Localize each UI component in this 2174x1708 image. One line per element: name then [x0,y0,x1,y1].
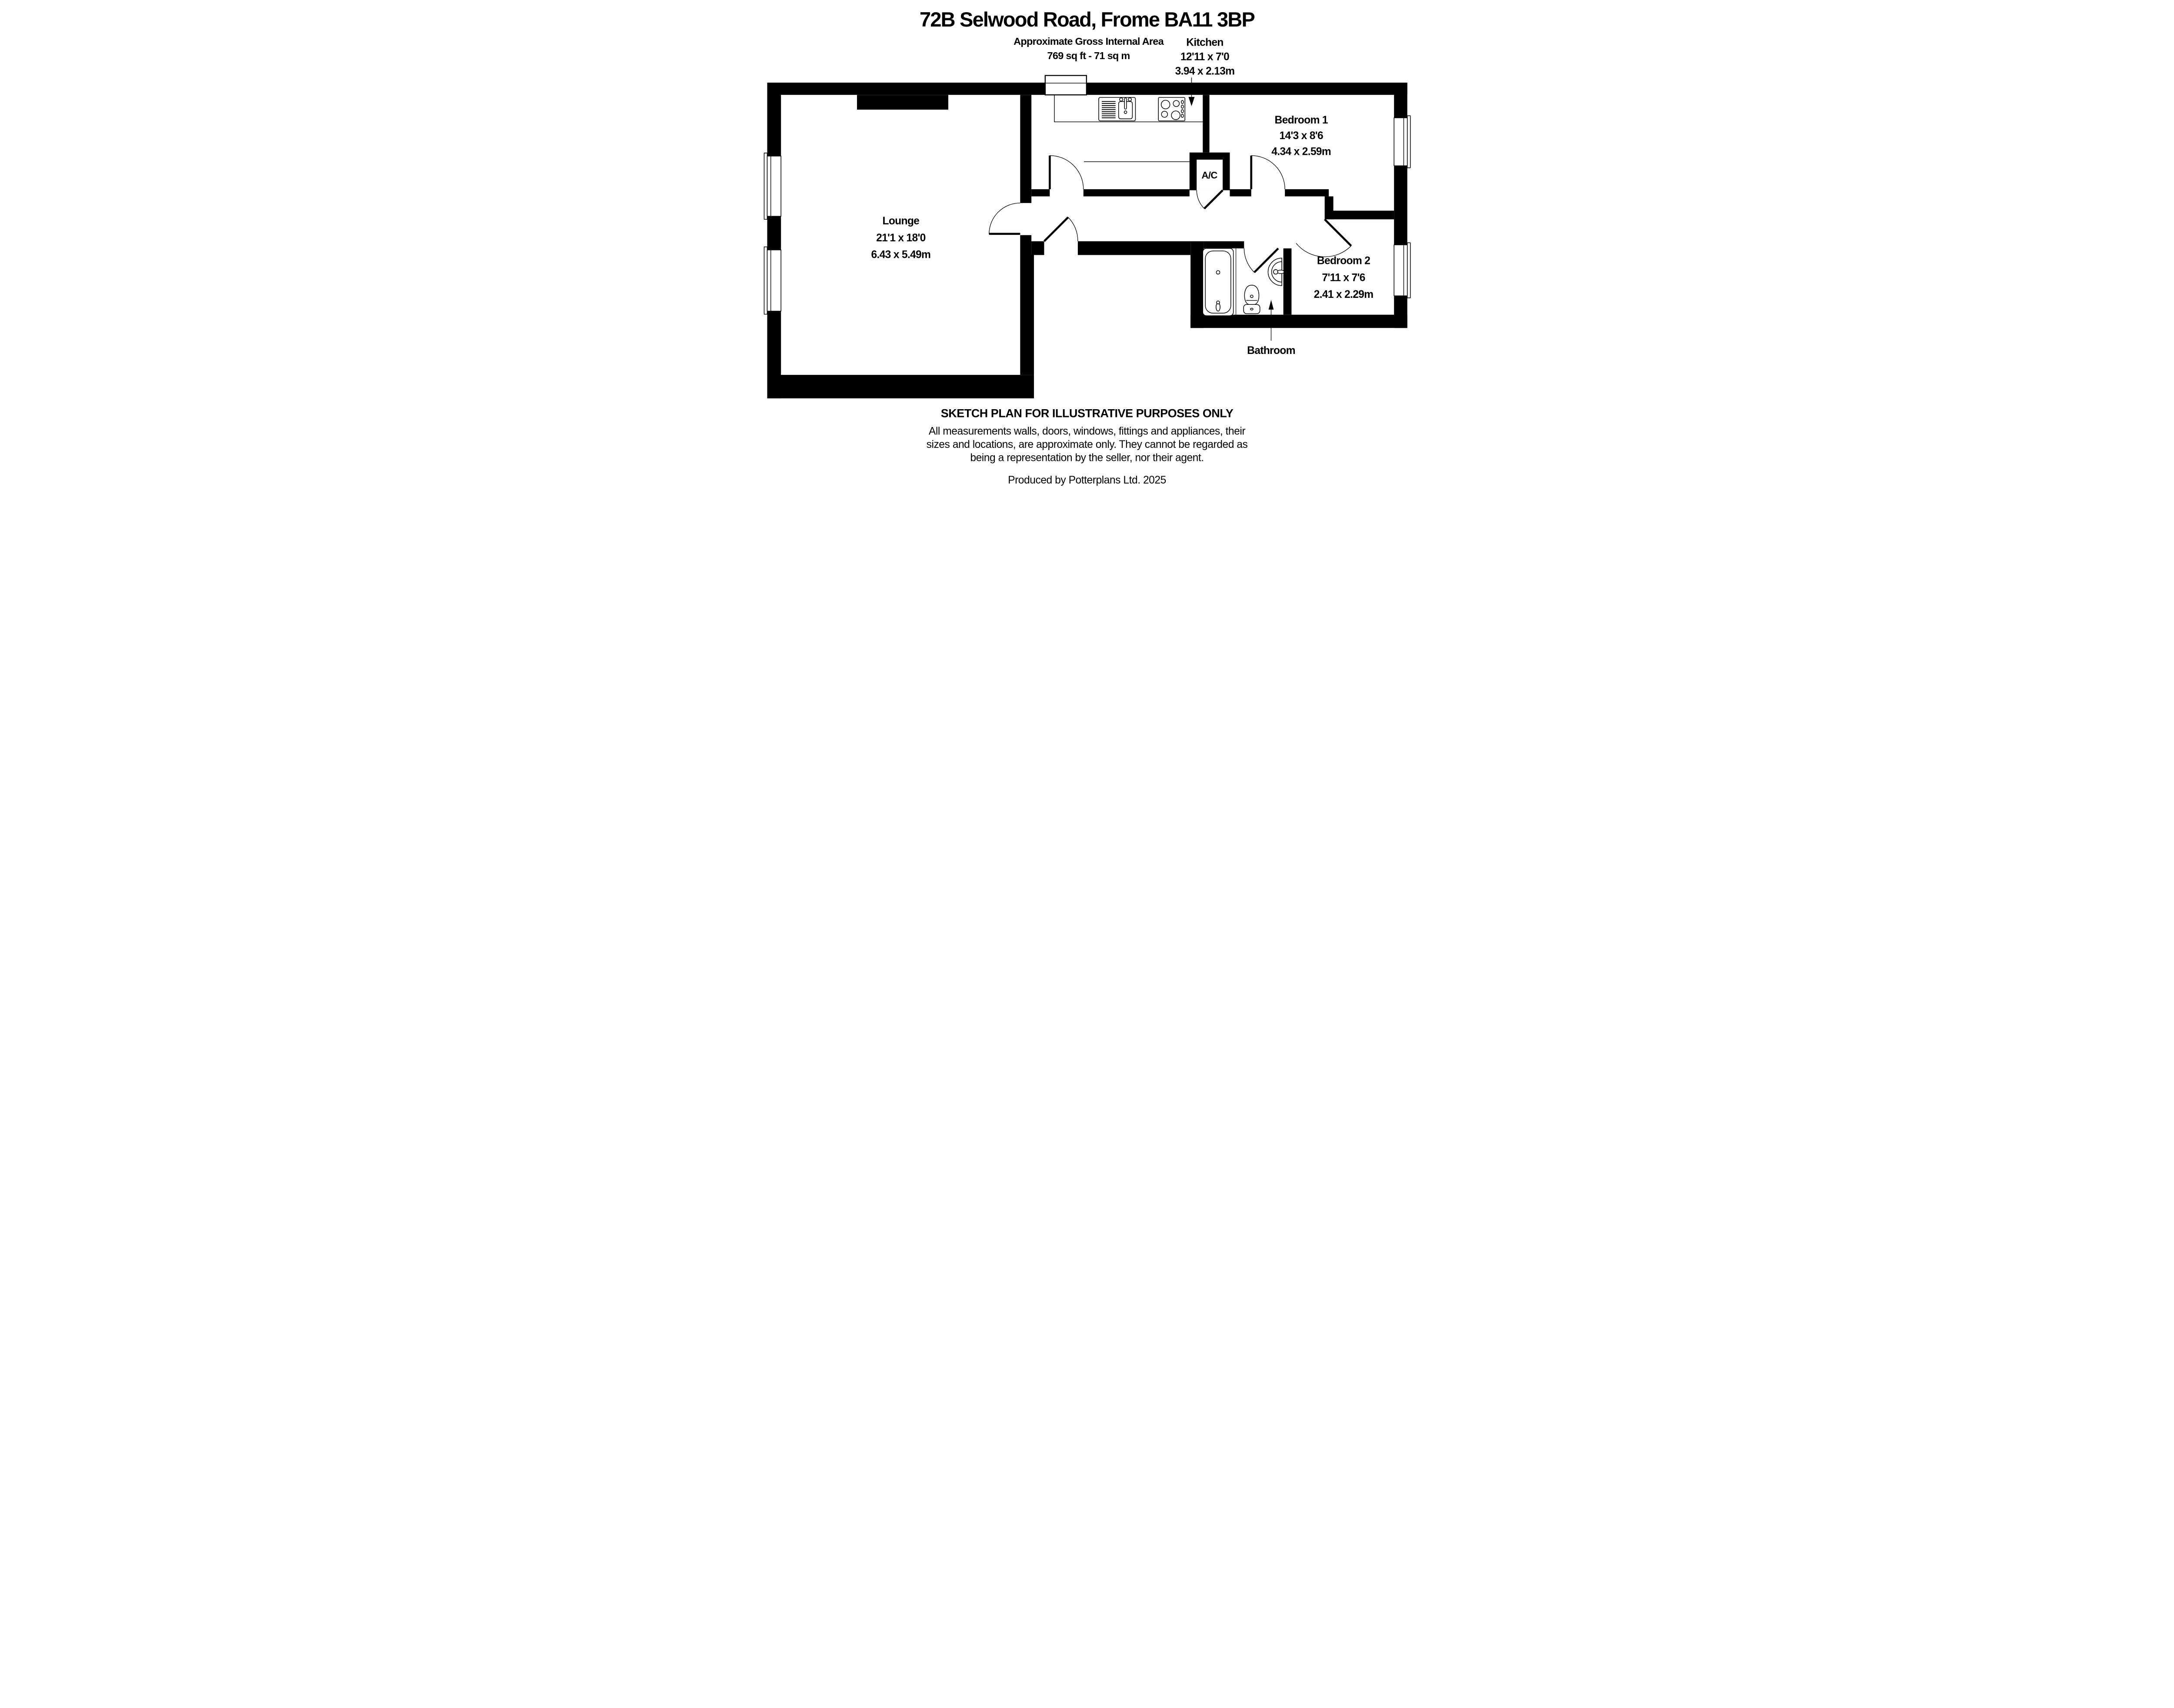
ac-label: A/C [1201,170,1217,181]
wall-lounge-right-lower [1020,255,1034,375]
lounge-window-lower [764,247,781,314]
bedroom1-window [1394,116,1410,168]
wall-left [767,83,781,398]
toilet-icon [1244,285,1260,314]
bedroom2-size-metric: 2.41 x 2.29m [1314,289,1374,300]
kitchen-sink-icon [1099,97,1135,121]
chimney-bay [1045,76,1087,95]
lounge-label: Lounge [883,215,920,227]
chimney-breast [857,95,948,110]
wall-entrance [1078,241,1190,255]
floor-plan-page: 72B Selwood Road, Frome BA11 3BP Approxi… [739,0,1435,501]
lounge-size-metric: 6.43 x 5.49m [871,249,931,261]
bedroom1-label: Bedroom 1 [1275,114,1328,126]
wall-kitchen-bedroom1 [1203,95,1209,153]
bathroom-label: Bathroom [1247,345,1295,357]
area-value: 769 sq ft - 71 sq m [1047,50,1130,61]
bedroom2-size-imperial: 7'11 x 7'6 [1322,272,1365,284]
area-label: Approximate Gross Internal Area [1014,36,1164,47]
ac-cupboard-door [1197,190,1223,209]
basin-icon [1268,258,1284,286]
lounge-window-upper [764,153,781,219]
lounge-size-imperial: 21'1 x 18'0 [876,232,926,244]
bedroom1-size-imperial: 14'3 x 8'6 [1279,130,1323,142]
kitchen-size-imperial: 12'11 x 7'0 [1180,51,1229,63]
wall-kitchen-bottom-stub [1031,189,1050,196]
disclaimer-line-1: All measurements walls, doors, windows, … [929,425,1245,437]
wall-top [767,83,1407,95]
bedroom1-door [1251,156,1285,189]
kitchen-size-metric: 3.94 x 2.13m [1175,65,1235,77]
wall-entrance-stub [1031,241,1044,255]
wall-bedroom1-bottom-left [1230,189,1251,196]
bedroom2-label: Bedroom 2 [1317,255,1370,267]
wall-kitchen-bottom [1084,189,1190,196]
bedroom2-door [1296,219,1351,257]
disclaimer-line-3: being a representation by the seller, no… [970,452,1204,464]
lounge-door [989,203,1020,234]
bathroom-pointer-arrow-icon [1269,300,1274,310]
kitchen-hob-icon [1158,97,1185,121]
bath-icon [1203,248,1233,316]
credit-line: Produced by Potterplans Ltd. 2025 [1008,474,1166,486]
disclaimer-line-2: sizes and locations, are approximate onl… [927,439,1248,450]
kitchen-label: Kitchen [1186,37,1223,49]
page-title: 72B Selwood Road, Frome BA11 3BP [920,8,1254,31]
wall-bedroom1-bottom-right [1285,189,1329,196]
wall-lounge-right-upper [1020,95,1031,203]
kitchen-pointer-arrow-icon [1188,97,1194,106]
bedroom2-window [1394,243,1410,298]
wall-bottom-right [1190,315,1407,328]
wall-bathroom-bedroom2 [1284,248,1292,314]
wall-bedroom2-top [1329,210,1394,219]
kitchen-door [1050,156,1083,189]
wall-lounge-right-mid [1020,235,1031,255]
kitchen-fixtures [1054,95,1203,162]
entrance-door [1044,217,1077,241]
bedroom1-size-metric: 4.34 x 2.59m [1271,146,1331,158]
wall-lounge-bottom [767,375,1034,398]
sketch-note: SKETCH PLAN FOR ILLUSTRATIVE PURPOSES ON… [941,407,1234,420]
wall-bathroom-top [1204,241,1244,248]
floor-plan-drawing: 72B Selwood Road, Frome BA11 3BP Approxi… [739,0,1435,501]
